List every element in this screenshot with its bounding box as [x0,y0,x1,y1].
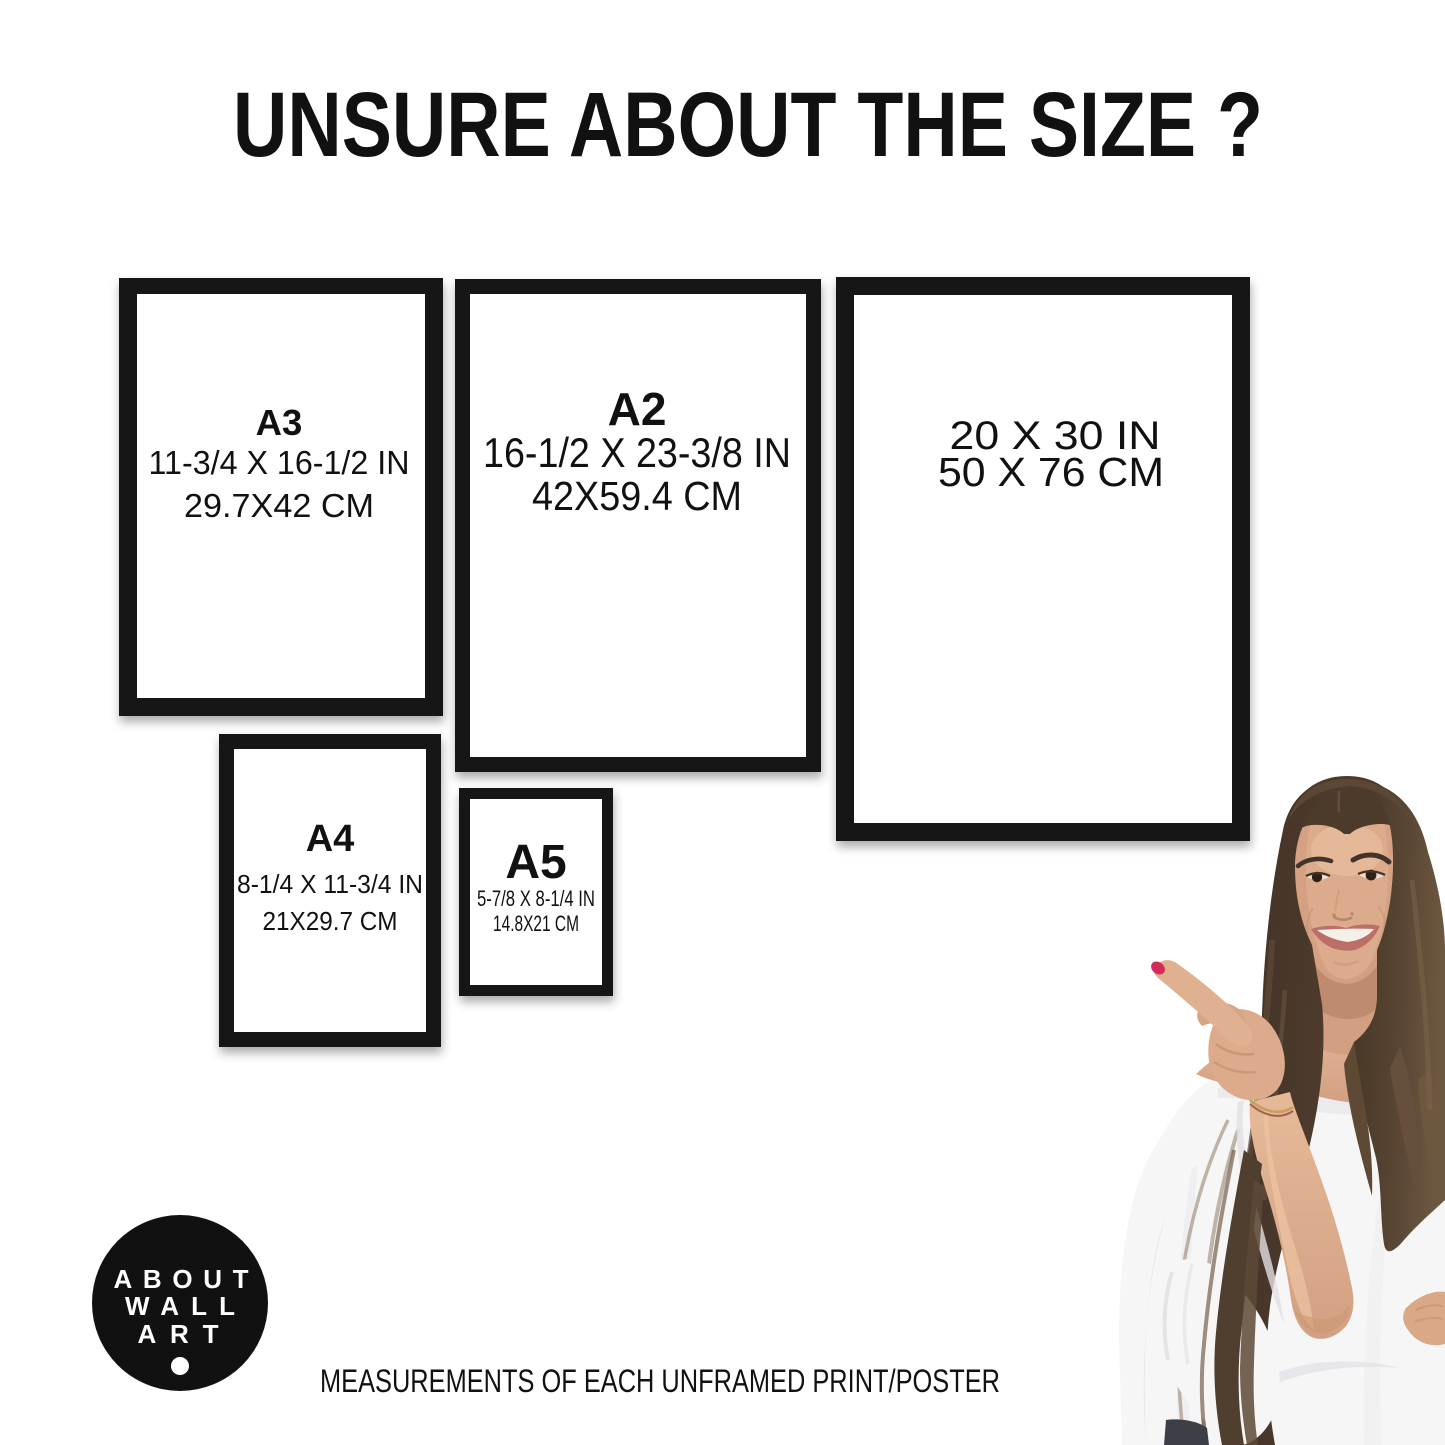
svg-text:42X59.4 CM: 42X59.4 CM [532,473,742,519]
svg-text:14.8X21 CM: 14.8X21 CM [493,911,579,936]
svg-text:ART: ART [138,1319,219,1349]
svg-text:UNSURE ABOUT THE SIZE ?: UNSURE ABOUT THE SIZE ? [233,74,1263,176]
svg-text:A2: A2 [608,383,667,435]
svg-text:A3: A3 [256,402,303,443]
svg-text:8-1/4 X 11-3/4 IN: 8-1/4 X 11-3/4 IN [237,869,423,899]
svg-text:29.7X42 CM: 29.7X42 CM [184,487,374,524]
svg-text:MEASUREMENTS OF EACH UNFRAMED: MEASUREMENTS OF EACH UNFRAMED PRINT/POST… [320,1363,1000,1399]
svg-text:5-7/8 X 8-1/4 IN: 5-7/8 X 8-1/4 IN [477,886,595,911]
svg-text:21X29.7 CM: 21X29.7 CM [263,906,398,936]
svg-text:16-1/2 X 23-3/8 IN: 16-1/2 X 23-3/8 IN [483,429,791,476]
svg-text:11-3/4 X 16-1/2 IN: 11-3/4 X 16-1/2 IN [149,444,410,481]
svg-text:50 X 76 CM: 50 X 76 CM [938,449,1164,495]
svg-text:A4: A4 [306,818,355,860]
svg-text:A5: A5 [505,836,566,889]
